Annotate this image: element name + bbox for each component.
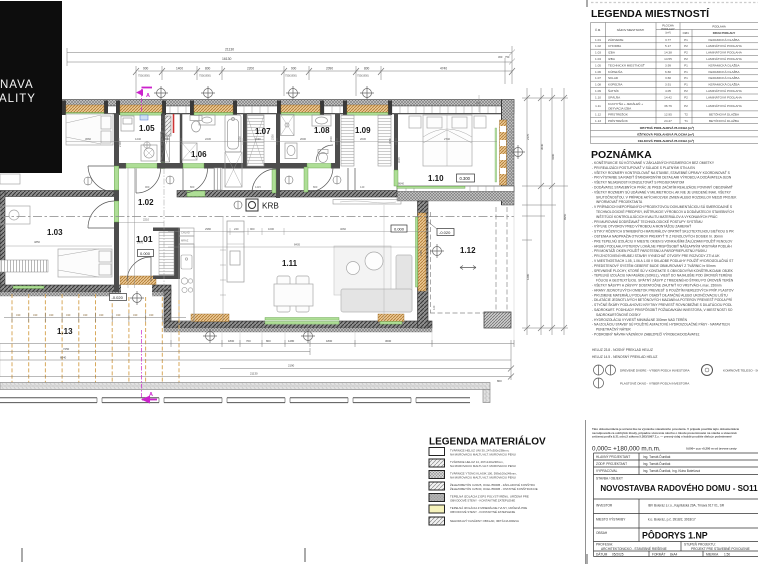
svg-text:750(1950): 750(1950) [199,74,211,78]
svg-text:430: 430 [33,313,38,317]
svg-text:21130: 21130 [250,372,258,376]
svg-text:1280: 1280 [288,339,295,343]
svg-text:1800: 1800 [326,339,333,343]
svg-text:FÓLIOU A GEOTEXTÍLIOU. SPÄTNÝ: FÓLIOU A GEOTEXTÍLIOU. SPÄTNÝ ZÁSYP Z TR… [596,278,734,283]
svg-text:- TEPELNÚ IZOLÁCIU NA FASÁDE: - TEPELNÚ IZOLÁCIU NA FASÁDE (SOKEL), VI… [592,273,733,278]
svg-text:4740: 4740 [440,67,447,71]
svg-text:2000: 2000 [300,137,306,141]
svg-text:CHLAD: CHLAD [181,231,190,235]
svg-text:LAMINÁTOVÁ PODLAHA: LAMINÁTOVÁ PODLAHA [706,57,742,61]
svg-text:1.07: 1.07 [255,127,271,136]
svg-text:ÚŽITKOVÁ PODLAHOVÁ PLOCHA [m²]: ÚŽITKOVÁ PODLAHOVÁ PLOCHA [m²] [637,131,694,136]
svg-text:2230: 2230 [238,136,242,142]
svg-text:PRÍSTREŠOK: PRÍSTREŠOK [608,118,629,123]
svg-text:4.05: 4.05 [665,89,671,93]
svg-text:3.77: 3.77 [665,38,671,42]
svg-text:0,000= +180,000 m.n.m.: 0,000= +180,000 m.n.m. [592,446,661,453]
svg-text:2210: 2210 [143,218,149,222]
svg-text:INŠTITÚCIÍ KONTROLUJÚCICH KVAL: INŠTITÚCIÍ KONTROLUJÚCICH KVALITU MATERI… [596,214,718,219]
svg-text:- HRANY JEDNOTLIVÝCH OMIETOK: - HRANY JEDNOTLIVÝCH OMIETOK PREVIESŤ S … [592,287,734,292]
svg-text:750(1950): 750(1950) [138,74,150,78]
svg-text:430: 430 [66,313,71,317]
svg-text:2090: 2090 [326,67,333,71]
svg-text:HLAVNÝ PROJEKTANT: HLAVNÝ PROJEKTANT [596,455,630,459]
svg-text:- HYDROIZOLÁCIU VYVIESŤ MINI: - HYDROIZOLÁCIU VYVIESŤ MINIMÁLNE 300mm … [592,317,688,322]
svg-text:- STYKY RÔZNYCH STAVEBNÝCH M: - STYKY RÔZNYCH STAVEBNÝCH MATERIÁLOV OP… [592,229,734,234]
svg-text:2130: 2130 [118,141,122,147]
svg-text:14.42: 14.42 [664,95,672,99]
svg-text:- PODROBNÝ NÁVRH VÄZNÍKOV ZA: - PODROBNÝ NÁVRH VÄZNÍKOV ZABEZPEČÍ VÝRO… [592,332,700,337]
svg-text:OBÝVACIA IZBA: OBÝVACIA IZBA [608,106,632,110]
svg-text:KÚPEĽŇA: KÚPEĽŇA [608,83,623,87]
svg-text:1.04: 1.04 [595,57,601,61]
svg-text:OZN.: OZN. [683,31,690,35]
svg-text:1.09: 1.09 [355,126,371,135]
svg-text:1.10: 1.10 [428,174,444,183]
svg-text:1800: 1800 [228,339,235,343]
svg-text:- HRUBÚ PODLAHU POTEROV LOKÁ: - HRUBÚ PODLAHU POTEROV LOKÁLNE PRISPÔSO… [592,243,732,248]
svg-text:LEGENDA MATERIÁLOV: LEGENDA MATERIÁLOV [429,435,546,448]
svg-text:800: 800 [364,67,370,71]
svg-text:- VŠETKY NÁSYPY A ZÁSYPY DOS: - VŠETKY NÁSYPY A ZÁSYPY DOSTATOČNE ZHUT… [592,283,722,288]
svg-text:1.09: 1.09 [595,89,601,93]
svg-text:120: 120 [432,305,436,310]
svg-text:2230: 2230 [205,137,211,141]
svg-text:KOMÍNOVÉ TELESO - SO: KOMÍNOVÉ TELESO - SO [723,368,758,373]
svg-text:- PRE TEPELNÚ IZOLÁCIU V MIE: - PRE TEPELNÚ IZOLÁCIU V MIESTE OKIEN S … [592,238,733,243]
svg-text:P1: P1 [684,83,688,87]
svg-text:- DILATÁCIE JEDNOTLIVÝCH BET: - DILATÁCIE JEDNOTLIVÝCH BETÓNOVÝCH MAZA… [592,297,732,302]
svg-text:1415: 1415 [255,185,261,189]
svg-text:- OSTENIA A NADPRAŽIA OTVORO: - OSTENIA A NADPRAŽIA OTVOROV PREKRYŤ TI… [592,234,723,239]
svg-text:900: 900 [143,67,149,71]
svg-text:VYPRACOVAL: VYPRACOVAL [596,469,618,473]
svg-text:0.300: 0.300 [460,176,471,181]
svg-text:1400: 1400 [176,67,183,71]
svg-text:8950: 8950 [563,213,567,220]
svg-text:8405: 8405 [294,243,300,247]
svg-text:INVESTOR: INVESTOR [596,504,613,508]
svg-text:ŠATNÍK: ŠATNÍK [608,88,620,93]
svg-text:P1: P1 [684,38,688,42]
svg-text:750(1950): 750(1950) [357,74,369,78]
svg-text:NA MUROVACIU MALTU ALT. MUROVA: NA MUROVACIU MALTU ALT. MUROVACIU PENU [450,464,516,468]
svg-text:SADROKARTÓNOVÉ DOSKY: SADROKARTÓNOVÉ DOSKY [596,312,642,317]
svg-text:1:50: 1:50 [724,552,730,556]
svg-text:14.38: 14.38 [664,51,672,55]
svg-text:NOVOSTAVBA RADOVÉHO DOMU - SO1: NOVOSTAVBA RADOVÉHO DOMU - SO11 [600,484,758,493]
svg-text:- VŠETKY NEJASNOSTI KONZULTO: - VŠETKY NEJASNOSTI KONZULTOVAŤ S PROJEK… [592,180,684,185]
svg-text:430: 430 [83,313,88,317]
svg-text:MIERKA: MIERKA [706,552,719,556]
svg-text:1.05: 1.05 [139,124,155,133]
svg-text:P2: P2 [684,95,688,99]
svg-text:430: 430 [16,313,21,317]
svg-text:0.000: 0.000 [394,227,405,232]
svg-text:MIESTO VÝSTAVBY: MIESTO VÝSTAVBY [596,518,626,522]
svg-text:A: A [146,93,150,99]
svg-text:PLASTOVÉ OKNO - VÝBER PODĽA IN: PLASTOVÉ OKNO - VÝBER PODĽA INVESTORA [620,381,690,386]
svg-text:- VÝPLNE OTVOROV PRED VÝROBO: - VÝPLNE OTVOROV PRED VÝROBOU A MONTÁŽOU… [592,224,691,229]
svg-text:ZÁDVERIE: ZÁDVERIE [608,38,623,42]
svg-text:2030: 2030 [329,136,333,142]
svg-text:3000: 3000 [385,339,392,343]
svg-text:IZBA: IZBA [608,51,616,55]
svg-text:BETÓNOVÁ DLAŽBA: BETÓNOVÁ DLAŽBA [709,118,740,123]
svg-text:7250: 7250 [63,347,70,351]
svg-text:4190: 4190 [551,153,555,160]
svg-text:IZBA: IZBA [608,57,616,61]
svg-text:3.99: 3.99 [665,63,671,67]
svg-text:2330: 2330 [271,134,275,140]
svg-text:1.13: 1.13 [595,119,601,123]
svg-text:- VŠETKY ROZMERY KONTROLOVAŤ: - VŠETKY ROZMERY KONTROLOVAŤ NA STAVBE, … [592,170,731,175]
svg-text:2230: 2230 [165,134,169,140]
svg-text:-0.020: -0.020 [439,230,451,235]
svg-text:P2: P2 [684,104,688,108]
svg-text:PENETRAČNÝ NÁTER: PENETRAČNÝ NÁTER [596,327,631,332]
svg-text:- STYČNÉ ŠKÁRY PODLAHOVEJ KR: - STYČNÉ ŠKÁRY PODLAHOVEJ KRYTINY PREVIE… [592,302,732,307]
svg-text:1.03: 1.03 [595,51,601,55]
svg-text:21130: 21130 [225,48,234,52]
svg-text:430: 430 [99,313,104,317]
svg-text:430: 430 [49,313,54,317]
svg-text:1.06: 1.06 [191,150,207,159]
svg-text:6640: 6640 [60,356,67,360]
svg-text:- DODÁVATEĽ STAVEBNÝCH PRÁC: - DODÁVATEĽ STAVEBNÝCH PRÁC JE PRED ZAČA… [592,185,733,190]
svg-text:430: 430 [149,313,154,317]
svg-text:140: 140 [360,185,365,189]
svg-text:P2: P2 [684,51,688,55]
svg-text:LAMINÁTOVÁ PODLAHA: LAMINÁTOVÁ PODLAHA [706,104,742,108]
svg-text:PROJEKT PRE STAVEBNÉ POVOLENIE: PROJEKT PRE STAVEBNÉ POVOLENIE [691,546,750,551]
svg-text:- PRI VÝSTAVBE SA RIADIŤ ŠTA: - PRI VÝSTAVBE SA RIADIŤ ŠTANDARDNÝMI DE… [592,175,732,180]
svg-text:800: 800 [497,379,502,383]
svg-text:800: 800 [205,67,211,71]
svg-text:KERAMICKÁ DLAŽBA: KERAMICKÁ DLAŽBA [708,69,740,74]
svg-text:1380: 1380 [419,250,423,256]
svg-text:LAMINÁTOVÁ PODLAHA: LAMINÁTOVÁ PODLAHA [706,95,742,99]
svg-text:1.05: 1.05 [595,63,601,67]
svg-text:36.76: 36.76 [664,104,672,108]
svg-text:Ing. Tomáš Ďurdiak: Ing. Tomáš Ďurdiak [643,461,671,466]
svg-text:STAVBA / OBJEKT: STAVBA / OBJEKT [596,477,623,481]
svg-text:12.95: 12.95 [664,113,672,117]
svg-text:LEGENDA MIESTNOSTÍ: LEGENDA MIESTNOSTÍ [591,7,710,20]
svg-text:OBVODOVÉ STENY - KONTAKTNÉ ZAT: OBVODOVÉ STENY - KONTAKTNÉ ZATEPLENIE [450,498,515,503]
svg-text:PODLAHA: PODLAHA [712,25,726,29]
svg-text:ZODP. PROJEKTANT: ZODP. PROJEKTANT [596,462,627,466]
svg-text:[m²]: [m²] [666,31,671,35]
svg-text:- PRI MUROVANÍ DODRŽIAVAŤ TE: - PRI MUROVANÍ DODRŽIAVAŤ TECHNOLOGICKÉ … [592,219,703,224]
svg-text:ARCHITEKTONICKO - STAVEBNÉ RIE: ARCHITEKTONICKO - STAVEBNÉ RIEŠENIE [601,546,667,551]
svg-text:5.17: 5.17 [665,44,671,48]
svg-text:1.08: 1.08 [314,126,330,135]
svg-text:1.12: 1.12 [460,246,476,255]
svg-text:CHODBA: CHODBA [608,44,622,48]
svg-text:2980: 2980 [205,227,211,231]
svg-text:- SPEVNENÉ PLOCHY, KTORÉ SÚ: - SPEVNENÉ PLOCHY, KTORÉ SÚ V KONTAKTE S… [592,268,734,273]
svg-text:1.06: 1.06 [595,70,601,74]
svg-text:900: 900 [145,185,150,189]
svg-text:430: 430 [116,313,121,317]
svg-text:1240: 1240 [135,137,141,141]
svg-text:900: 900 [250,227,255,231]
svg-text:P2: P2 [684,57,688,61]
svg-text:KERAMICKÁ DLAŽBA: KERAMICKÁ DLAŽBA [708,37,740,42]
svg-text:- V PRÍPADOCH NEPOPÍSANÝCH P: - V PRÍPADOCH NEPOPÍSANÝCH PROJEKTOVOU D… [592,204,733,209]
svg-text:900: 900 [291,67,297,71]
svg-text:1.03: 1.03 [47,228,63,237]
svg-text:- PRI ZHOTOVENÍ HRUBEJ STAVB: - PRI ZHOTOVENÍ HRUBEJ STAVBY VYNECHAŤ O… [592,253,720,258]
svg-text:3.91: 3.91 [665,83,671,87]
svg-text:LAMINÁTOVÁ PODLAHA: LAMINÁTOVÁ PODLAHA [706,51,742,55]
svg-text:2170: 2170 [526,133,530,140]
svg-text:P1: P1 [684,63,688,67]
svg-text:240: 240 [234,227,239,231]
svg-text:2200: 2200 [247,67,254,71]
svg-text:6.60: 6.60 [665,70,671,74]
svg-text:8xA4: 8xA4 [670,552,677,556]
svg-text:1.11: 1.11 [595,104,601,108]
svg-text:PÔDORYS 1.NP: PÔDORYS 1.NP [642,530,708,541]
svg-text:HELUZ 23.8 - NOSNÝ PREKLAD HEL: HELUZ 23.8 - NOSNÝ PREKLAD HELUZ [592,348,653,352]
svg-text:PRÍSTREŠOK: PRÍSTREŠOK [608,112,629,117]
svg-text:- PREDSTENOVÝ SYSTÉM GEBERIT: - PREDSTENOVÝ SYSTÉM GEBERIT BUDE OBMURO… [592,263,716,268]
svg-text:2190: 2190 [288,364,295,368]
svg-text:SPÁLŇA: SPÁLŇA [608,95,621,99]
svg-text:- VŠETKY ROZMERY SÚ UDÁVANÉ: - VŠETKY ROZMERY SÚ UDÁVANÉ V MILIMETROC… [592,189,732,194]
svg-text:Ing. Tomáš Ďurdiak: Ing. Tomáš Ďurdiak [643,454,671,459]
svg-text:1.11: 1.11 [282,259,298,268]
svg-text:OBYTNÁ PODLAHOVÁ PLOCHA [m²]: OBYTNÁ PODLAHOVÁ PLOCHA [m²] [640,125,694,130]
svg-text:OBSAH: OBSAH [596,531,608,535]
svg-text:OBVODOVÉ STENY - KONTAKTNÉ ZAT: OBVODOVÉ STENY - KONTAKTNÉ ZATEPLENIE [450,509,515,514]
svg-text:DRUH PODLAHY: DRUH PODLAHY [713,31,736,35]
svg-text:3660: 3660 [85,137,91,141]
svg-text:1.01: 1.01 [136,234,153,244]
svg-text:3040: 3040 [540,143,544,150]
svg-text:KERAMICKÁ DLAŽBA: KERAMICKÁ DLAŽBA [708,75,740,80]
svg-text:A: A [149,392,153,398]
svg-text:1000: 1000 [268,227,274,231]
svg-text:750(1950): 750(1950) [285,74,297,78]
svg-text:POZNÁMKA: POZNÁMKA [591,148,652,161]
svg-text:- SADROKART. PODHĽADY PRISPÔ: - SADROKART. PODHĽADY PRISPÔSOBIŤ POŽIAD… [592,307,733,312]
svg-text:800: 800 [266,339,271,343]
svg-text:750: 750 [505,55,510,59]
svg-text:ŽELEZOBETÓN C25/30, OCEL B500B: ŽELEZOBETÓN C25/30, OCEL B500B - OSTATNÉ… [450,486,538,491]
svg-text:DREVENÉ DVERE - VÝBER PODĽA IN: DREVENÉ DVERE - VÝBER PODĽA INVESTORA [620,368,691,373]
svg-text:INFORMOVAŤ PROJEKTANTA: INFORMOVAŤ PROJEKTANTA [596,199,643,204]
svg-text:4850: 4850 [34,240,40,244]
svg-text:1.13: 1.13 [57,327,73,336]
svg-text:- NA IZOLÁCIU STAVBY SÚ POUŽ: - NA IZOLÁCIU STAVBY SÚ POUŽITÉ ASFALTOV… [592,322,730,327]
svg-text:- KONŠTRUKCIE SÚ KÓTOVANÉ V: - KONŠTRUKCIE SÚ KÓTOVANÉ V ZÁKLADNÝCH R… [592,160,715,165]
svg-text:300: 300 [498,55,503,59]
svg-text:P2: P2 [684,89,688,93]
svg-text:0,000= cca +0,200 m od úr: 0,000= cca +0,200 m od úrovne cesty [686,447,737,451]
svg-text:T2: T2 [684,113,688,117]
svg-text:1.12: 1.12 [595,113,601,117]
svg-text:P1: P1 [684,76,688,80]
svg-text:0.000: 0.000 [140,251,151,256]
svg-text:4060: 4060 [340,227,346,231]
svg-text:- PRI REALIZÁCII POSTUPOVAŤ: - PRI REALIZÁCII POSTUPOVAŤ V SÚLADE S P… [592,165,695,170]
svg-text:2740: 2740 [444,137,450,141]
svg-text:ALITY: ALITY [0,93,36,105]
svg-text:IBV Boleráz s.r.o., Kapitulská: IBV Boleráz s.r.o., Kapitulská 29A, Trna… [648,504,725,508]
svg-text:SKUTOČNOSŤOU. V PRÍPADE AKÝCHK: SKUTOČNOSŤOU. V PRÍPADE AKÝCHKOĽVEK ZMIE… [596,194,737,199]
svg-text:800: 800 [190,185,195,189]
svg-text:2030: 2030 [360,137,366,141]
svg-text:Č.M.: Č.M. [595,27,601,32]
svg-text:1.02: 1.02 [595,44,601,48]
svg-text:CELKOVÁ PODLAHOVÁ PLOCHA [m²]: CELKOVÁ PODLAHOVÁ PLOCHA [m²] [638,138,694,143]
svg-text:DÁTUM: DÁTUM [596,552,608,556]
svg-text:1.01: 1.01 [595,38,601,42]
svg-text:700: 700 [246,339,251,343]
svg-text:k.ú. Boleráz, p.č. 3918/2, 391: k.ú. Boleráz, p.č. 3918/2, 3918/17 [648,518,696,522]
svg-text:TECHNICKÁ MIESTNOSŤ: TECHNICKÁ MIESTNOSŤ [608,62,645,67]
svg-text:1190: 1190 [255,137,261,141]
svg-text:NÁZOV MIESTNOSTI: NÁZOV MIESTNOSTI [617,28,645,32]
svg-text:430: 430 [133,313,138,317]
svg-text:MRAZ: MRAZ [181,239,189,243]
svg-text:FORMÁT: FORMÁT [652,552,666,556]
svg-text:NA MUROVACIU MALTU ALT. MUROVA: NA MUROVACIU MALTU ALT. MUROVACIU PENU [450,476,516,480]
svg-text:3005: 3005 [397,157,401,163]
svg-text:14.55: 14.55 [664,57,672,61]
svg-text:P2: P2 [684,44,688,48]
svg-text:KÚPEĽŇA: KÚPEĽŇA [608,70,623,74]
svg-text:1280: 1280 [526,273,530,280]
svg-text:1.08: 1.08 [595,83,601,87]
svg-text:BETÓNOVÁ DLAŽBA: BETÓNOVÁ DLAŽBA [709,112,740,117]
svg-text:1.07: 1.07 [595,76,601,80]
svg-text:NAVA: NAVA [0,79,34,91]
svg-text:NA MUROVACIU MALTU ALT. MUROVA: NA MUROVACIU MALTU ALT. MUROVACIU PENU [450,453,516,457]
svg-text:P1: P1 [684,70,688,74]
svg-text:- PRI ZMENE MATERIÁLU PODLAH: - PRI ZMENE MATERIÁLU PODLAHY OSADIŤ DIL… [592,292,728,297]
svg-text:LAMINÁTOVÁ PODLAHA: LAMINÁTOVÁ PODLAHA [706,44,742,48]
svg-text:8640: 8640 [398,182,404,186]
svg-text:3.60: 3.60 [665,76,671,80]
svg-text:KRB: KRB [262,202,279,211]
svg-text:- V MIESTNOSTIACH 1.05, 1.06: - V MIESTNOSTIACH 1.05, 1.06 A 1.08 V SK… [592,258,733,263]
svg-text:KERAMICKÁ DLAŽBA: KERAMICKÁ DLAŽBA [708,82,740,87]
svg-text:-0.020: -0.020 [112,295,124,300]
svg-text:KERAMICKÁ DLAŽBA: KERAMICKÁ DLAŽBA [708,62,740,67]
svg-text:NEHORĽAVÝ FASÁDNY OBKLAD, IMIT: NEHORĽAVÝ FASÁDNY OBKLAD, IMITÁCIA DREVA [450,519,519,523]
svg-text:3080: 3080 [388,138,392,144]
svg-text:TECHNOLOGICKÉ PREDPISY, INŠTRU: TECHNOLOGICKÉ PREDPISY, INŠTRUKCIE VÝROB… [596,209,734,214]
svg-text:HELUZ 14.5 - NENOSNÝ PREKLAD H: HELUZ 14.5 - NENOSNÝ PREKLAD HELUZ [592,355,657,359]
svg-text:16130: 16130 [222,57,232,61]
svg-text:SKLAD: SKLAD [608,76,619,80]
svg-text:Ing. Tomáš Ďurdiak, Ing. Klára: Ing. Tomáš Ďurdiak, Ing. Klára Botešová [643,468,700,473]
svg-text:- PRI MONTÁŽI OKIEN POUŽIŤ P: - PRI MONTÁŽI OKIEN POUŽIŤ PAROTESNÚ A P… [592,248,707,253]
svg-text:910: 910 [476,101,481,105]
svg-text:LAMINÁTOVÁ PODLAHA: LAMINÁTOVÁ PODLAHA [706,89,742,93]
svg-text:T1: T1 [684,119,688,123]
svg-text:05/2025: 05/2025 [612,552,624,556]
svg-text:1.02: 1.02 [138,198,154,207]
svg-text:800: 800 [313,185,318,189]
svg-text:24.47: 24.47 [664,119,672,123]
svg-text:1.10: 1.10 [595,95,601,99]
svg-text:zničenej podľa § 21.odst.2 zák: zničenej podľa § 21.odst.2 zákona 5.383/… [592,435,732,439]
